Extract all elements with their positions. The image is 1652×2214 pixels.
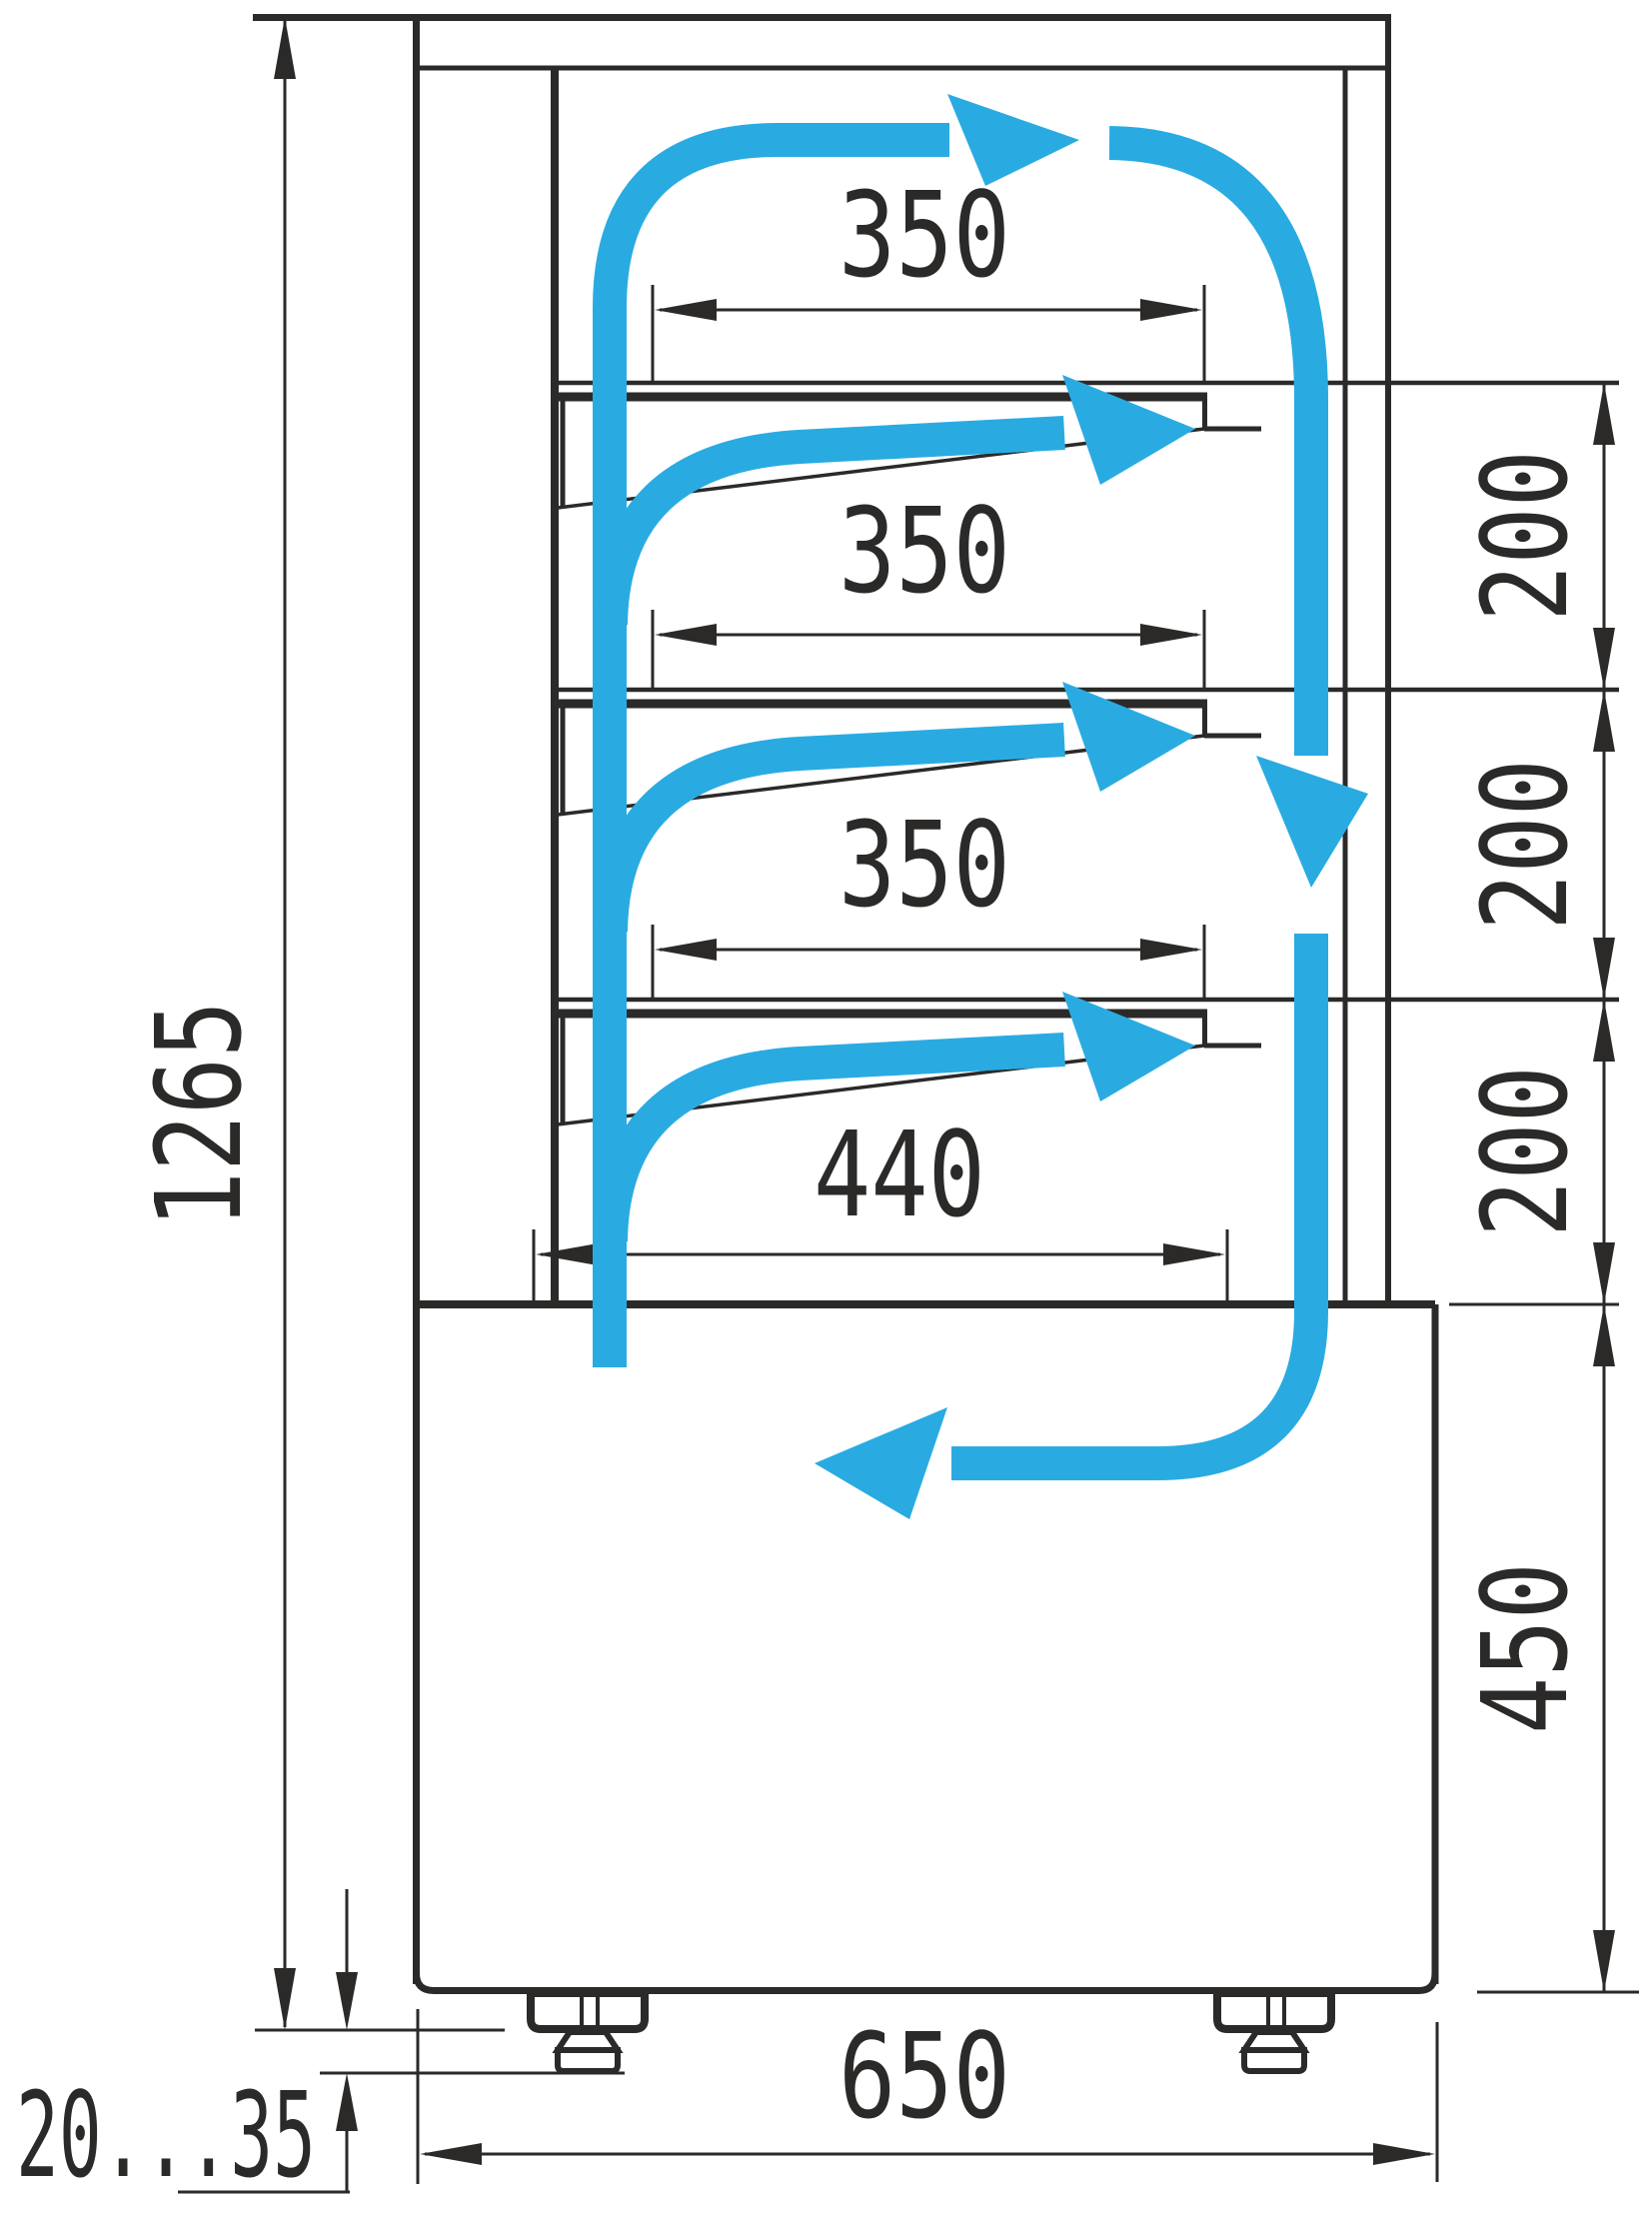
dim-label-bottom-shelf-depth: 440 bbox=[814, 1106, 985, 1243]
airflow-shelf-1-arrow-icon bbox=[1062, 375, 1195, 485]
dim-label-gap-2: 200 bbox=[1456, 759, 1594, 931]
dim-label-shelf-1-depth: 350 bbox=[838, 166, 1010, 304]
dimension-labels: 350 350 350 440 200 200 200 450 1265 650… bbox=[16, 166, 1594, 2204]
airflow-down-arrow-icon bbox=[1256, 756, 1368, 888]
dim-label-overall-height: 1265 bbox=[130, 1001, 268, 1228]
cabinet-cross-section-diagram: 350 350 350 440 200 200 200 450 1265 650… bbox=[0, 0, 1652, 2214]
base-bottom-line bbox=[417, 1949, 1436, 1991]
dimension-lines bbox=[178, 17, 1639, 2192]
dim-label-overall-depth: 650 bbox=[838, 2007, 1010, 2145]
dim-label-gap-1: 200 bbox=[1456, 450, 1594, 622]
adjustable-foot-left bbox=[531, 1993, 645, 2071]
airflow-return-arrow-icon bbox=[815, 1407, 947, 1519]
dim-shelf-2-depth bbox=[653, 610, 1204, 690]
airflow-shelf-3-arrow-icon bbox=[1062, 992, 1195, 1102]
dim-label-base-height: 450 bbox=[1456, 1562, 1594, 1734]
drawing-canvas: 350 350 350 440 200 200 200 450 1265 650… bbox=[0, 0, 1652, 2214]
dim-label-foot-adjustment: 20...35 bbox=[16, 2066, 316, 2204]
dim-shelf-3-depth bbox=[653, 925, 1204, 1000]
adjustable-foot-right bbox=[1217, 1993, 1331, 2071]
dim-label-shelf-2-depth: 350 bbox=[838, 482, 1010, 620]
airflow-shelf-2-arrow-icon bbox=[1062, 682, 1195, 792]
dim-label-gap-3: 200 bbox=[1456, 1066, 1594, 1237]
dim-overall-height bbox=[255, 17, 625, 2073]
dim-label-shelf-3-depth: 350 bbox=[838, 796, 1010, 934]
